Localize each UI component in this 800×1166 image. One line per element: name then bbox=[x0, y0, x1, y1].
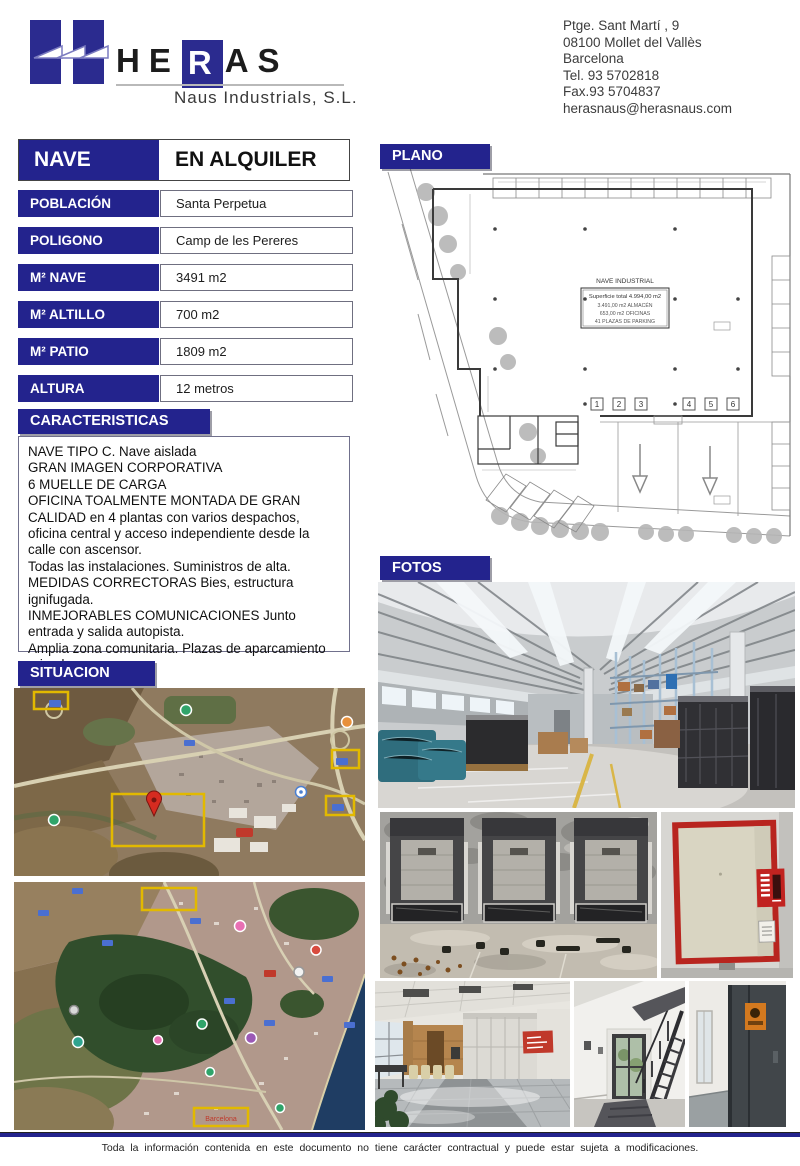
loading-docks-photo bbox=[380, 812, 657, 978]
company-logo: HERAS Naus Industrials, S.L. bbox=[0, 0, 360, 115]
field-row-poligono: POLIGONO Camp de les Pereres bbox=[18, 227, 354, 254]
field-label: M² NAVE bbox=[18, 264, 159, 291]
road-label-red bbox=[236, 828, 253, 837]
field-value: 1809 m2 bbox=[160, 338, 353, 365]
dock-number: 4 bbox=[687, 400, 692, 409]
situacion-header: SITUACION bbox=[18, 661, 155, 686]
plan-title: NAVE INDUSTRIAL bbox=[596, 278, 654, 285]
listing-title-row: NAVE EN ALQUILER bbox=[18, 139, 350, 181]
logo-r-square: R bbox=[182, 40, 223, 88]
field-row-poblacion: POBLACIÓN Santa Perpetua bbox=[18, 190, 354, 217]
listing-type-label: NAVE bbox=[19, 140, 159, 180]
contact-address-line: Barcelona bbox=[563, 51, 732, 68]
warehouse-interior-photo bbox=[378, 582, 795, 808]
plan-parking: 41 PLAZAS DE PARKING bbox=[595, 319, 655, 325]
office-interior-photo bbox=[375, 981, 570, 1127]
logo-wordmark: HERAS bbox=[116, 38, 289, 86]
footer-divider bbox=[0, 1132, 800, 1137]
footer-disclaimer: Toda la información contenida en este do… bbox=[0, 1142, 800, 1154]
field-label: M² PATIO bbox=[18, 338, 159, 365]
contact-fax: Fax.93 5704837 bbox=[563, 84, 732, 101]
logo-underline bbox=[116, 84, 344, 86]
contact-block: Ptge. Sant Martí , 9 08100 Mollet del Va… bbox=[563, 18, 732, 117]
map-city-label: Barcelona bbox=[205, 1116, 237, 1123]
flyer-page: HERAS Naus Industrials, S.L. Ptge. Sant … bbox=[0, 0, 800, 1166]
field-row-m2-nave: M² NAVE 3491 m2 bbox=[18, 264, 354, 291]
fire-door-photo bbox=[661, 812, 793, 978]
field-value: Camp de les Pereres bbox=[160, 227, 353, 254]
dock-number: 1 bbox=[595, 400, 600, 409]
plan-warehouse-area: 3.491,00 m2 ALMACÉN bbox=[597, 302, 652, 309]
fotos-header: FOTOS bbox=[380, 556, 490, 580]
field-label: ALTURA bbox=[18, 375, 159, 402]
logo-emblem-icon bbox=[28, 16, 120, 92]
listing-status-label: EN ALQUILER bbox=[159, 140, 349, 180]
logo-subtitle: Naus Industrials, S.L. bbox=[174, 88, 358, 108]
plan-office-area: 653,00 m2 OFICINAS bbox=[600, 311, 651, 317]
dark-door-photo bbox=[689, 981, 786, 1127]
dock-number: 6 bbox=[731, 400, 736, 409]
contact-address-line: 08100 Mollet del Vallès bbox=[563, 35, 732, 52]
contact-email: herasnaus@herasnaus.com bbox=[563, 101, 732, 118]
field-value: 3491 m2 bbox=[160, 264, 353, 291]
situation-map-wide: Barcelona bbox=[14, 882, 365, 1130]
stairwell-photo bbox=[574, 981, 685, 1127]
logo-as: AS bbox=[225, 42, 289, 79]
field-label: POLIGONO bbox=[18, 227, 159, 254]
field-label: M² ALTILLO bbox=[18, 301, 159, 328]
field-row-m2-altillo: M² ALTILLO 700 m2 bbox=[18, 301, 354, 328]
field-value: 700 m2 bbox=[160, 301, 353, 328]
field-row-altura: ALTURA 12 metros bbox=[18, 375, 354, 402]
caracteristicas-header: CARACTERISTICAS bbox=[18, 409, 210, 434]
dock-number: 2 bbox=[617, 400, 622, 409]
caracteristicas-text: NAVE TIPO C. Nave aislada GRAN IMAGEN CO… bbox=[18, 436, 350, 652]
contact-phone: Tel. 93 5702818 bbox=[563, 68, 732, 85]
field-value: Santa Perpetua bbox=[160, 190, 353, 217]
plano-header: PLANO bbox=[380, 144, 490, 169]
plan-total-area: Superficie total 4.994,00 m2 bbox=[589, 294, 661, 300]
field-label: POBLACIÓN bbox=[18, 190, 159, 217]
dock-number: 3 bbox=[639, 400, 644, 409]
dock-number: 5 bbox=[709, 400, 714, 409]
field-row-m2-patio: M² PATIO 1809 m2 bbox=[18, 338, 354, 365]
situation-map-close bbox=[14, 688, 365, 876]
floor-plan-image: 1 2 3 4 5 6 bbox=[378, 164, 795, 548]
contact-address-line: Ptge. Sant Martí , 9 bbox=[563, 18, 732, 35]
logo-he: HE bbox=[116, 42, 180, 79]
field-value: 12 metros bbox=[160, 375, 353, 402]
